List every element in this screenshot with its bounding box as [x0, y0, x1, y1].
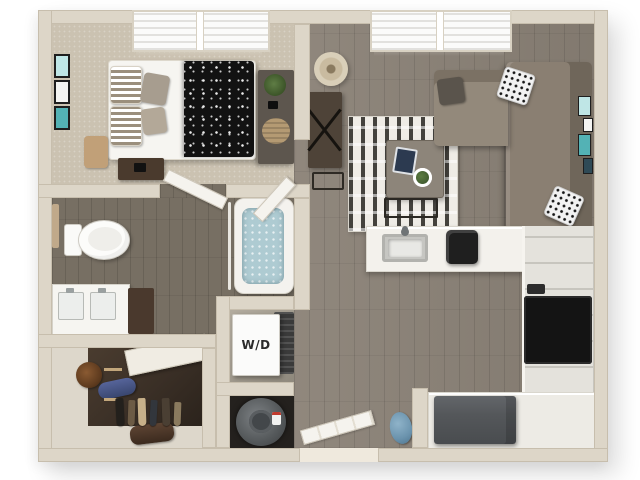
wall-bedroom-living — [294, 24, 310, 140]
window-mullion — [196, 12, 204, 50]
dresser-phone — [268, 101, 278, 109]
toilet-seat — [88, 227, 122, 251]
closet-hat — [76, 362, 102, 388]
closet-hanging-rod — [104, 368, 122, 371]
wall-bathroom-closet — [38, 334, 216, 348]
vanity-sink — [90, 292, 116, 320]
wall-laundry-left — [216, 296, 230, 448]
closet-hanging-clothes — [174, 402, 182, 426]
gallery-frame — [583, 118, 593, 132]
closet-hanging-clothes — [138, 398, 147, 426]
metal-bench — [384, 198, 438, 218]
bedroom-window-blinds — [132, 10, 270, 52]
wall-art-frame — [54, 80, 70, 104]
vanity-cabinet — [128, 288, 154, 334]
floor-lamp — [314, 52, 348, 86]
dresser-plant — [264, 74, 286, 96]
wall-stub-entry — [412, 388, 428, 448]
console-stool — [312, 172, 344, 190]
wall-outer-right — [594, 10, 608, 462]
accent-pillow — [140, 106, 167, 135]
wall-outer-bottom-right — [378, 448, 608, 462]
coffee-table-plant-leaves — [416, 171, 429, 184]
closet-hanging-clothes — [128, 400, 136, 426]
wall-closet-right — [202, 348, 216, 448]
sofa-throw-pillow — [436, 76, 465, 105]
stove-pot — [527, 284, 545, 294]
wall-bedroom-bathroom-left — [38, 184, 160, 198]
nightstand-phone — [134, 163, 146, 172]
wall-bathroom-living — [294, 198, 310, 310]
wall-outer-top — [38, 10, 608, 24]
kitchen-faucet — [401, 228, 409, 236]
wall-art-frame — [54, 106, 70, 130]
dresser-basket — [262, 118, 290, 144]
washer-dryer-label: W/D — [233, 315, 279, 375]
window-mullion — [436, 12, 444, 50]
gallery-frame — [578, 134, 591, 156]
closet-hanging-clothes — [149, 400, 157, 426]
shower-rod — [228, 202, 231, 290]
bed-pillow — [110, 106, 142, 146]
wall-outer-left — [38, 10, 52, 462]
countertop-appliance — [446, 230, 478, 264]
kitchen-sink-basin — [388, 239, 422, 257]
closet-hanging-clothes — [162, 398, 171, 426]
entry-threshold — [300, 448, 378, 462]
gallery-frame — [583, 158, 593, 174]
closet-hanging-clothes — [115, 398, 124, 426]
gallery-frame — [578, 96, 591, 116]
bed-polka-dot-blanket — [184, 61, 254, 157]
vanity-faucet — [98, 288, 106, 293]
living-window-blinds — [370, 10, 512, 52]
storage-ottoman — [84, 136, 108, 168]
towel-bar — [52, 204, 59, 248]
wall-laundry-utility-divider — [216, 382, 294, 396]
vanity-faucet — [66, 288, 74, 293]
washer-dryer-unit: W/D — [232, 314, 280, 376]
water-heater-valve — [272, 412, 281, 425]
bed-pillow — [110, 66, 142, 104]
stove — [524, 296, 592, 364]
accent-pillow — [140, 72, 171, 106]
vanity-sink — [58, 292, 84, 320]
refrigerator — [434, 396, 516, 444]
wall-art-frame — [54, 54, 70, 78]
water-heater-cap — [249, 410, 273, 433]
wall-outer-bottom-left — [38, 448, 300, 462]
floor-plan: W/D — [0, 0, 640, 480]
